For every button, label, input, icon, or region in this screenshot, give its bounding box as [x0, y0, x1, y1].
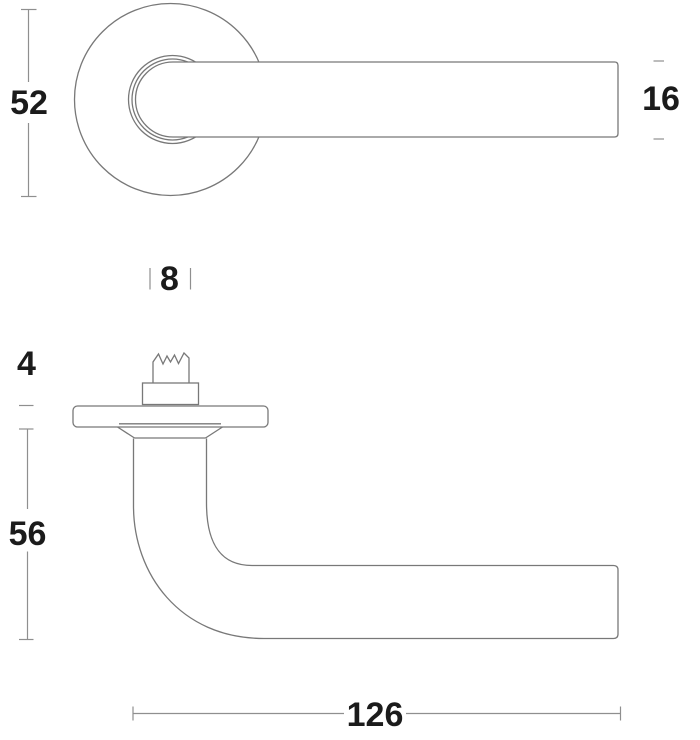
- dimension-rose-thickness: [19, 406, 34, 430]
- collar-right-slant: [206, 427, 223, 438]
- dim-label-rose-diameter: 52: [10, 86, 48, 120]
- dim-label-lever-profile: 16: [642, 82, 680, 116]
- dim-label-projection: 56: [9, 517, 47, 551]
- collar-left-slant: [118, 427, 135, 438]
- spindle-broken-shaft: [153, 353, 189, 383]
- lever-bar-front: [136, 62, 619, 137]
- technical-drawing-canvas: 52 16 8 4 56 126: [0, 0, 700, 740]
- side-view: [73, 353, 618, 639]
- spindle-nut-block: [143, 383, 199, 405]
- drawing-linework: [0, 0, 700, 740]
- lever-profile-outline: [134, 439, 619, 639]
- dim-label-spindle-width: 8: [160, 262, 179, 296]
- front-view: [75, 4, 619, 196]
- dim-label-rose-thickness: 4: [17, 347, 36, 381]
- dim-label-lever-length: 126: [347, 698, 404, 732]
